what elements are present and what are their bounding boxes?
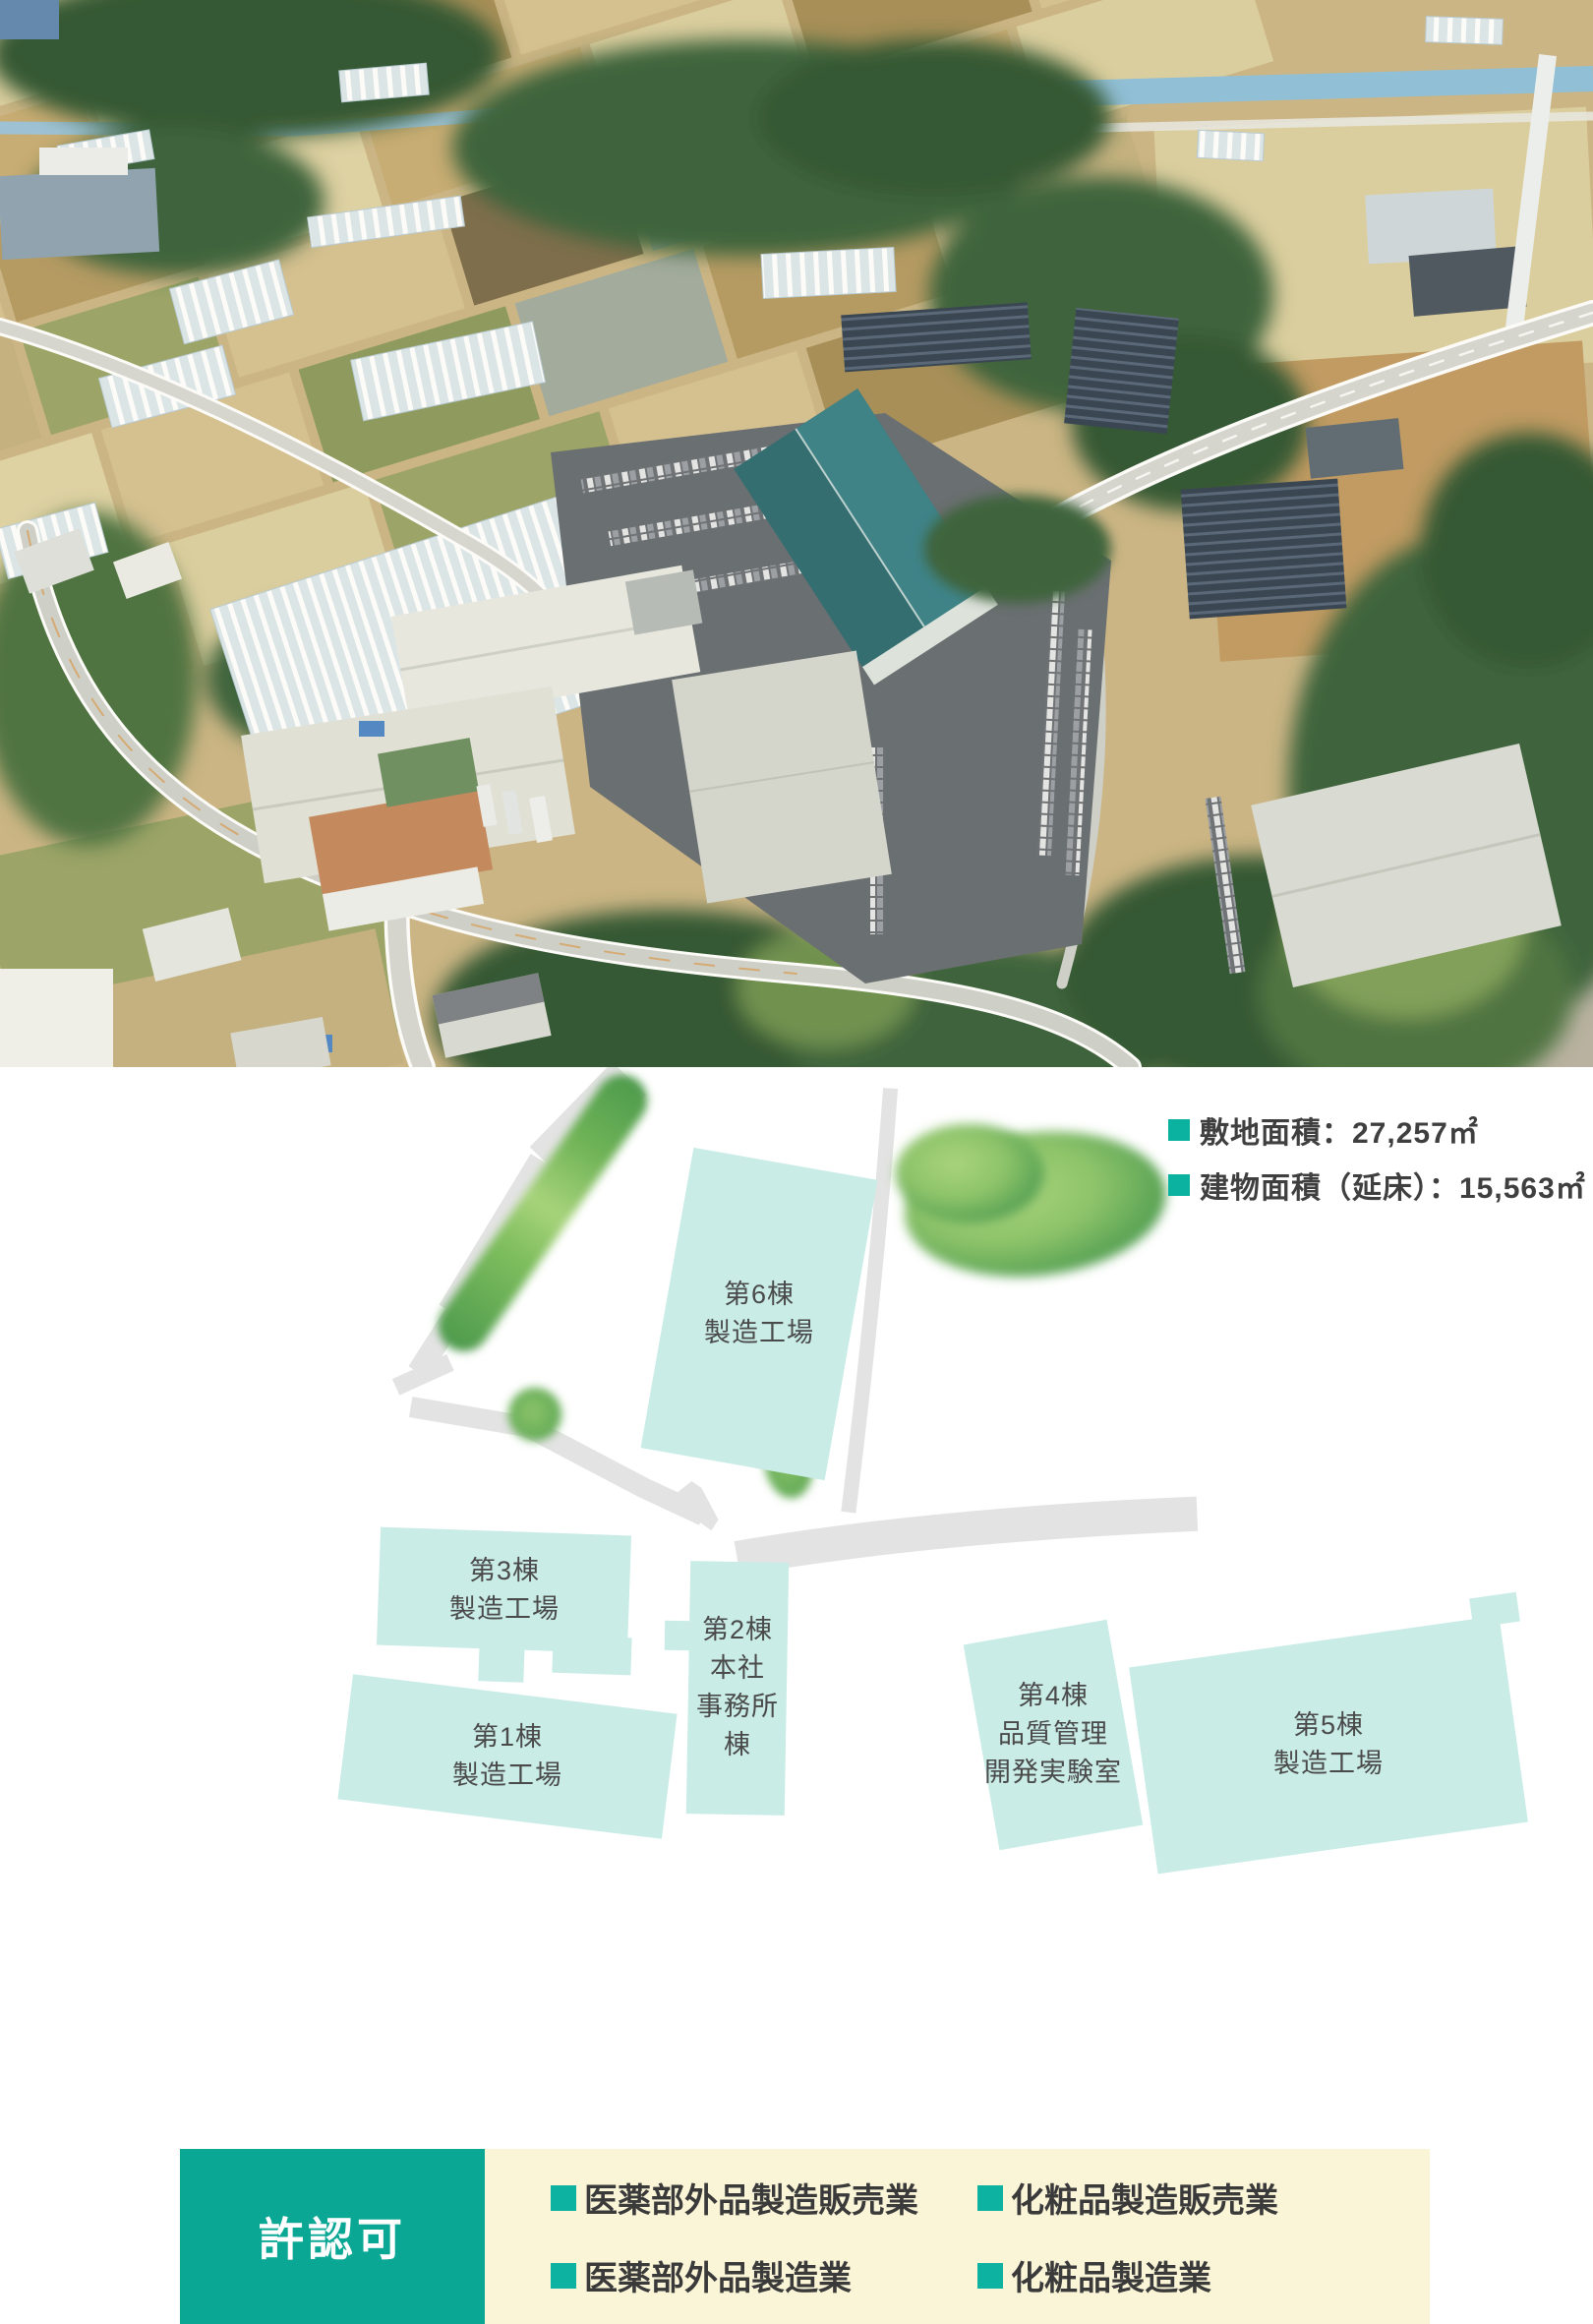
building-3-annex-2 <box>552 1636 631 1676</box>
license-item-text: 医薬部外品製造業 <box>584 2251 852 2299</box>
license-title: 許認可 <box>259 2204 406 2269</box>
license-item-text: 化粧品製造業 <box>1011 2251 1211 2299</box>
building-3: 第3棟 製造工場 <box>377 1527 631 1654</box>
site-area-text: 敷地面積：27,257㎡ <box>1200 1108 1479 1152</box>
building-2-annex <box>665 1621 693 1650</box>
building-3-label: 第3棟 製造工場 <box>449 1552 560 1629</box>
building-2: 第2棟 本社 事務所棟 <box>686 1561 789 1816</box>
teal-square-icon <box>977 2185 1003 2211</box>
license-item-text: 医薬部外品製造販売業 <box>584 2174 918 2222</box>
building-4-label: 第4棟 品質管理 開発実験室 <box>984 1677 1122 1792</box>
teal-square-icon <box>1168 1119 1190 1141</box>
floor-area-row: 建物面積（延床）：15,563㎡ <box>1168 1163 1586 1207</box>
license-item-text: 化粧品製造販売業 <box>1011 2174 1278 2222</box>
teal-square-icon <box>551 2263 576 2289</box>
building-6-label: 第6棟 製造工場 <box>704 1276 814 1352</box>
photo-tint <box>0 0 1593 1067</box>
floor-area-text: 建物面積（延床）：15,563㎡ <box>1200 1163 1586 1207</box>
building-3-annex <box>478 1641 524 1683</box>
building-1-label: 第1棟 製造工場 <box>452 1718 562 1795</box>
area-legend: 敷地面積：27,257㎡ 建物面積（延床）：15,563㎡ <box>1168 1108 1586 1207</box>
building-5-label: 第5棟 製造工場 <box>1273 1706 1384 1783</box>
building-2-label: 第2棟 本社 事務所棟 <box>688 1611 787 1765</box>
license-title-box: 許認可 <box>180 2149 485 2324</box>
factory-overview-page: 第6棟 製造工場 第3棟 製造工場 第1棟 製造工場 第2棟 本社 事務所棟 第… <box>0 0 1593 2324</box>
license-item: 化粧品製造業 <box>977 2251 1430 2299</box>
site-area-row: 敷地面積：27,257㎡ <box>1168 1108 1586 1152</box>
license-item: 医薬部外品製造販売業 <box>551 2174 977 2222</box>
teal-square-icon <box>977 2263 1003 2289</box>
teal-square-icon <box>551 2185 576 2211</box>
aerial-photo <box>0 0 1593 1067</box>
license-list: 医薬部外品製造販売業 化粧品製造販売業 医薬部外品製造業 化粧品製造業 <box>485 2149 1430 2324</box>
license-item: 化粧品製造販売業 <box>977 2174 1430 2222</box>
license-item: 医薬部外品製造業 <box>551 2251 977 2299</box>
teal-square-icon <box>1168 1174 1190 1196</box>
